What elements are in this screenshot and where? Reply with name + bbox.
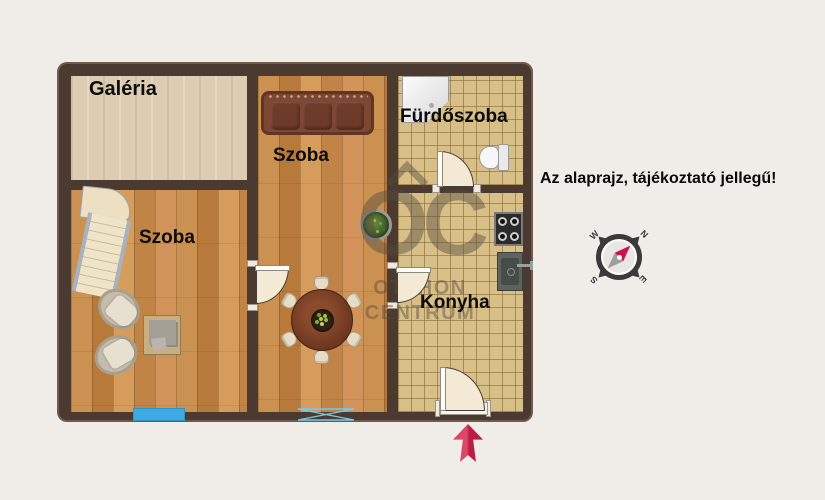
dining-table-icon bbox=[291, 289, 353, 351]
faucet-icon bbox=[517, 264, 532, 267]
entrance-arrow-icon bbox=[452, 424, 484, 462]
toilet-tank bbox=[498, 144, 509, 171]
window-icon bbox=[297, 408, 355, 421]
door-jamb bbox=[473, 184, 481, 193]
floorplan: OC OTTHON CENTRUM bbox=[57, 62, 533, 422]
room-label-szoba-left: Szoba bbox=[139, 227, 195, 249]
room-label-galeria: Galéria bbox=[89, 78, 157, 101]
sink-icon bbox=[497, 252, 523, 291]
door-leaf bbox=[255, 265, 290, 271]
plant-icon bbox=[360, 209, 392, 241]
toilet-icon bbox=[479, 146, 500, 169]
room-label-konyha: Konyha bbox=[420, 292, 490, 314]
stairs-icon bbox=[70, 185, 137, 298]
door-leaf bbox=[437, 151, 443, 187]
door-leaf bbox=[396, 267, 431, 273]
room-label-furdoszoba: Fürdőszoba bbox=[400, 106, 508, 128]
chair-icon bbox=[314, 350, 329, 364]
sofa-icon bbox=[261, 91, 374, 135]
door-jamb bbox=[387, 302, 398, 309]
disclaimer-text: Az alaprajz, tájékoztató jellegű! bbox=[540, 170, 777, 188]
compass-icon: W N S E bbox=[588, 226, 650, 288]
door-leaf bbox=[440, 367, 446, 411]
side-table-icon bbox=[143, 315, 181, 355]
room-label-szoba-center: Szoba bbox=[273, 145, 329, 167]
window-icon bbox=[133, 408, 185, 421]
door-jamb bbox=[247, 304, 258, 311]
floorplan-canvas: OC OTTHON CENTRUM bbox=[0, 0, 825, 500]
chair-icon bbox=[314, 276, 329, 290]
fruit-bowl-icon bbox=[311, 309, 334, 332]
compass-label-s: S bbox=[588, 274, 599, 285]
stove-icon bbox=[494, 212, 523, 246]
compass-label-e: E bbox=[637, 273, 648, 284]
